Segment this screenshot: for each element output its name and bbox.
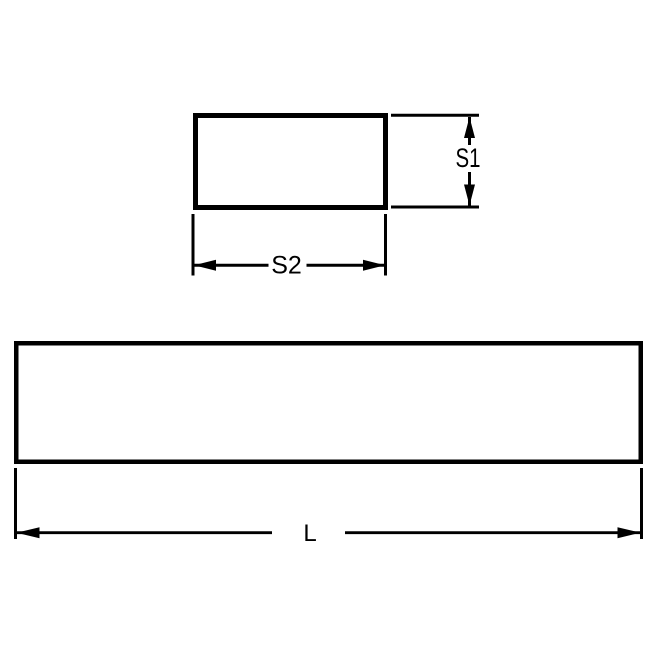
svg-text:S2: S2 [271, 251, 302, 279]
svg-text:L: L [303, 520, 316, 547]
svg-text:S1: S1 [456, 143, 481, 173]
